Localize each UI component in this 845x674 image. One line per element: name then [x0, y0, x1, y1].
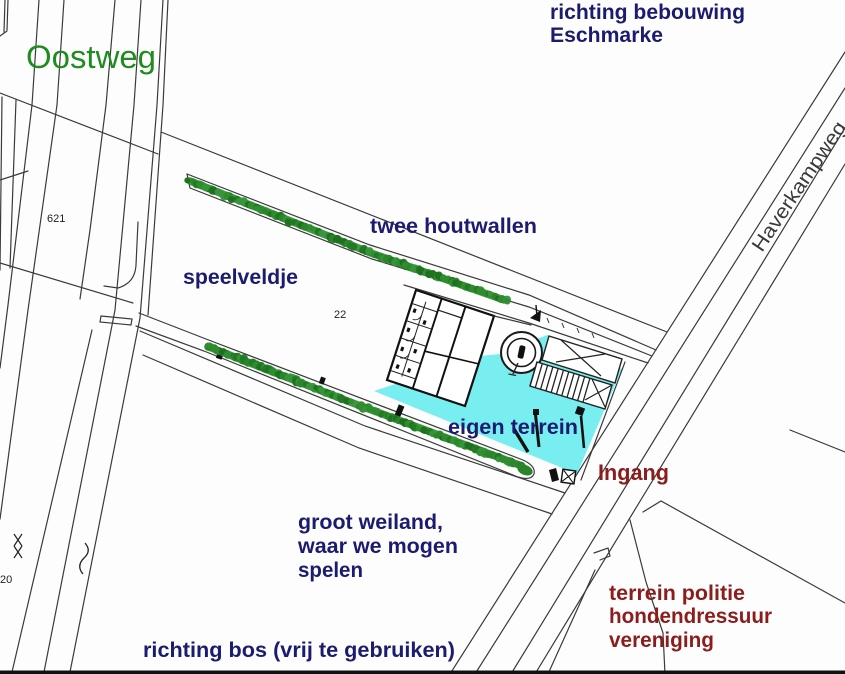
svg-text:waar we mogen: waar we mogen: [297, 535, 458, 558]
svg-text:Oostweg: Oostweg: [26, 39, 156, 75]
svg-text:richting bos (vrij te gebruike: richting bos (vrij te gebruiken): [143, 639, 455, 662]
svg-text:Eschmarke: Eschmarke: [550, 24, 663, 47]
svg-text:hondendressuur: hondendressuur: [609, 605, 772, 628]
svg-text:speelveldje: speelveldje: [183, 266, 298, 289]
svg-text:richting bebouwing: richting bebouwing: [550, 1, 745, 24]
svg-text:vereniging: vereniging: [609, 629, 714, 652]
svg-text:Ingang: Ingang: [598, 460, 669, 485]
svg-text:groot weiland,: groot weiland,: [298, 511, 443, 534]
svg-text:twee houtwallen: twee houtwallen: [370, 215, 537, 238]
svg-text:eigen terrein: eigen terrein: [448, 416, 578, 439]
svg-text:621: 621: [47, 213, 65, 225]
svg-text:22: 22: [334, 309, 346, 321]
svg-text:spelen: spelen: [298, 559, 363, 582]
svg-text:terrein politie: terrein politie: [609, 582, 745, 605]
svg-text:20: 20: [0, 574, 12, 586]
